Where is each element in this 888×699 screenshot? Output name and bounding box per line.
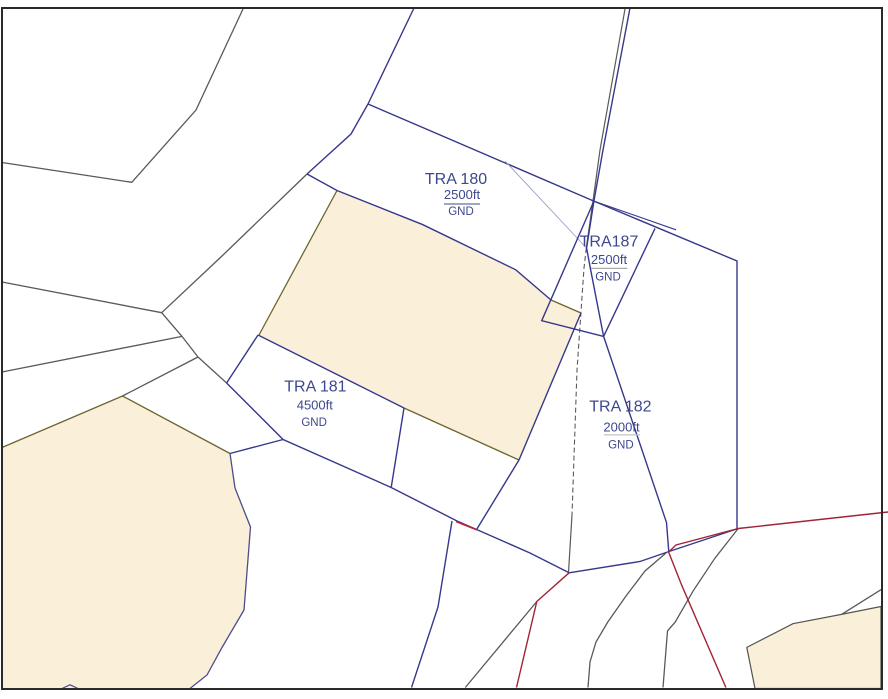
svg-text:GND: GND bbox=[608, 440, 634, 452]
svg-text:4500ft: 4500ft bbox=[297, 398, 334, 413]
svg-text:GND: GND bbox=[595, 272, 621, 284]
svg-text:GND: GND bbox=[448, 206, 474, 218]
svg-text:TRA 180: TRA 180 bbox=[425, 171, 487, 188]
svg-text:2500ft: 2500ft bbox=[444, 187, 481, 202]
svg-text:TRA187: TRA187 bbox=[580, 234, 639, 251]
svg-text:TRA 181: TRA 181 bbox=[284, 379, 346, 396]
svg-text:GND: GND bbox=[301, 417, 327, 429]
svg-text:2500ft: 2500ft bbox=[591, 252, 628, 267]
svg-text:TRA 182: TRA 182 bbox=[589, 398, 651, 415]
svg-text:2000ft: 2000ft bbox=[603, 420, 640, 435]
